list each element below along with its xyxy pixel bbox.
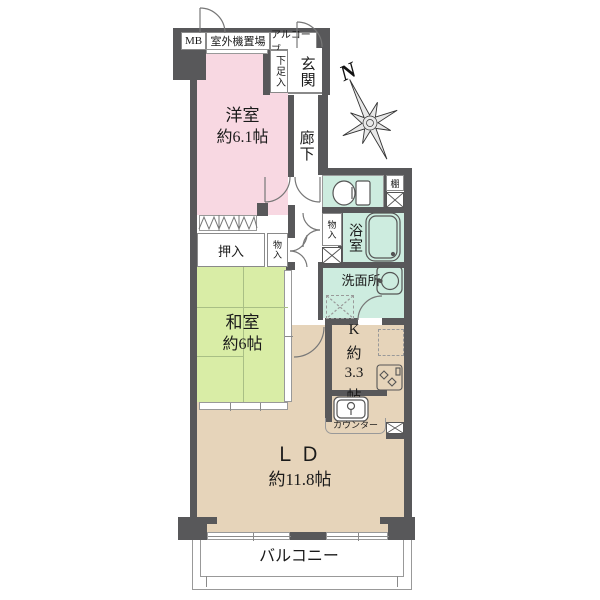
door-arc-western-room [265, 177, 290, 202]
floor-plan: MB 室外機置場 アルコーブ 下足入 玄関 廊下 棚 物入 押入 物入 [0, 0, 600, 600]
compass-rose: N [334, 56, 397, 159]
door-arc-living [294, 327, 324, 357]
washbasin-icon [377, 266, 402, 294]
north-label: N [334, 56, 361, 86]
door-arc-toilet [295, 177, 320, 202]
door-arc-washroom [358, 296, 382, 320]
door-arc-mb [200, 8, 225, 33]
kitchen-sink-icon [334, 397, 368, 421]
bathtub-icon [366, 213, 400, 261]
plan-vector-overlay: N [0, 0, 600, 600]
closet-bifold-zigzag [199, 215, 257, 231]
stove-icon [377, 365, 402, 390]
toilet-icon [333, 181, 370, 205]
door-arc-entrance [297, 22, 322, 48]
